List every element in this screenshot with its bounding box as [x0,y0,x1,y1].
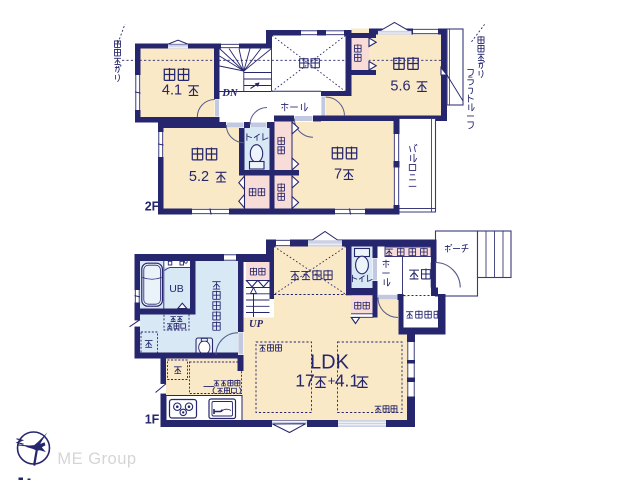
svg-text:2F: 2F [145,200,160,214]
svg-text:17: 17 [295,371,314,391]
svg-text:DN: DN [221,88,238,99]
svg-text:ME Group: ME Group [57,450,136,468]
svg-text:4.1: 4.1 [335,371,359,391]
svg-text:4.1: 4.1 [162,83,182,99]
svg-text:UP: UP [249,319,264,330]
svg-text:5.6: 5.6 [390,79,410,95]
svg-text:7: 7 [334,167,342,183]
svg-text:5.2: 5.2 [189,169,209,185]
svg-text:1F: 1F [145,413,160,427]
svg-text:UB: UB [169,283,184,295]
